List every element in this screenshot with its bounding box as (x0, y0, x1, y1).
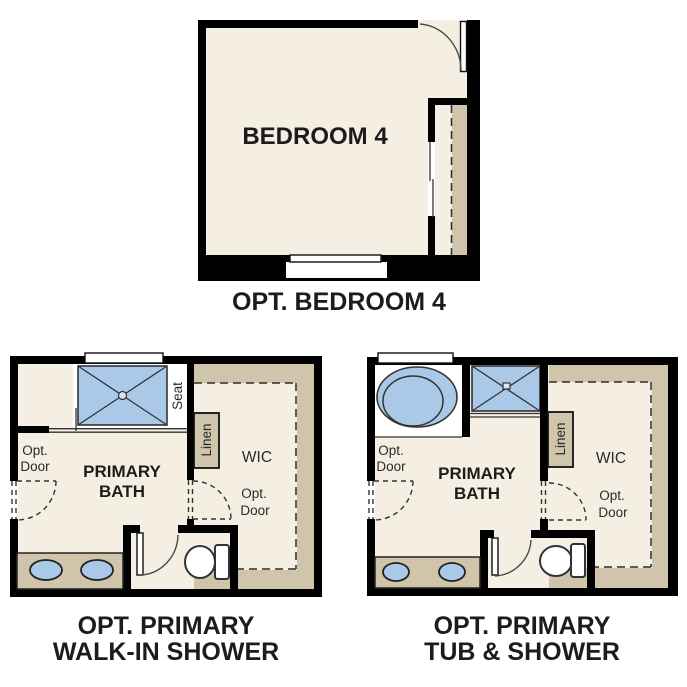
wall-top (198, 20, 418, 28)
tub-shower-divider-wall (462, 357, 470, 437)
bedroom4-room-label: BEDROOM 4 (242, 123, 388, 150)
opt-door-opening-left (10, 481, 18, 519)
shower-drain (119, 392, 127, 400)
sink-left (383, 563, 409, 581)
sink-right (439, 563, 465, 581)
wic-floor (194, 383, 297, 570)
shower-stub-wall (17, 426, 49, 433)
closet-door-opening (428, 142, 435, 216)
shower-window (85, 353, 163, 363)
wic-label: WIC (242, 449, 272, 466)
wall-right (467, 20, 480, 281)
tubshower-title-line2: TUB & SHOWER (424, 638, 620, 666)
plan-bedroom4: BEDROOM 4 OPT. BEDROOM 4 (198, 20, 480, 316)
linen-label: Linen (199, 423, 214, 456)
wc-wall-top-right (178, 525, 238, 533)
plan-walkin-shower: Opt. Door PRIMARY BATH WIC Opt. Door Sea… (10, 353, 322, 666)
bedroom4-title: OPT. BEDROOM 4 (232, 288, 446, 316)
bedroom4-floor (198, 20, 480, 281)
linen-label: Linen (553, 422, 568, 455)
wall-bottom (10, 589, 322, 597)
wall-bottom (367, 588, 676, 596)
wall-bath-wic-upper (540, 357, 548, 481)
opt-door-label: Door (20, 459, 50, 474)
tubshower-title-line1: OPT. PRIMARY (434, 612, 611, 640)
primary-bath-label: BATH (454, 484, 500, 503)
opt-door-label: Door (240, 503, 270, 518)
window-glazing (290, 255, 381, 262)
shower-drain (503, 383, 510, 389)
opt-door-label: Door (598, 505, 628, 520)
plan-tub-shower: Opt. Door PRIMARY BATH WIC Opt. Door Lin… (367, 353, 678, 666)
wc-wall-left (480, 530, 488, 588)
primary-bath-label: PRIMARY (438, 464, 516, 483)
tub-window (378, 353, 453, 363)
opt-door-label: Opt. (378, 443, 404, 458)
entry-door-leaf (461, 22, 467, 72)
opt-door-label: Door (376, 459, 406, 474)
wc-door-leaf (137, 533, 143, 575)
wc-wall-right (587, 530, 595, 596)
wall-left (198, 20, 206, 281)
opt-door-label: Opt. (241, 486, 267, 501)
closet-shelf (452, 105, 467, 255)
wall-left-upper (10, 364, 18, 481)
floorplan-drawing: BEDROOM 4 OPT. BEDROOM 4 (0, 0, 687, 687)
sink-right (81, 560, 113, 580)
toilet-bowl (540, 546, 572, 576)
wc-wall-top-right (531, 530, 595, 538)
toilet-tank (215, 545, 229, 579)
wc-wall-top-left (123, 525, 140, 533)
toilet-tank (571, 544, 585, 577)
primary-bath-label: PRIMARY (83, 462, 161, 481)
wall-right (314, 356, 322, 597)
walkin-title-line2: WALK-IN SHOWER (53, 638, 279, 666)
primary-bath-label: BATH (99, 482, 145, 501)
floorplan-sheet: BEDROOM 4 OPT. BEDROOM 4 (0, 0, 687, 687)
wc-wall-right (230, 525, 238, 597)
wc-door-leaf (492, 538, 498, 575)
window-sill (286, 262, 387, 278)
opt-door-label: Opt. (599, 488, 625, 503)
wc-wall-left (123, 525, 131, 597)
wc-wall-top-left (480, 530, 494, 538)
wall-left-upper (367, 365, 375, 481)
wall-right (668, 357, 678, 596)
wall-left-lower (367, 519, 375, 596)
wic-floor (549, 382, 652, 568)
toilet-bowl (185, 546, 215, 578)
sink-left (30, 560, 62, 580)
wic-label: WIC (596, 450, 626, 467)
opt-door-opening-left (367, 481, 375, 519)
opt-door-label: Opt. (22, 443, 48, 458)
wall-top (10, 356, 322, 364)
wall-bath-wic-upper (187, 364, 194, 480)
seat-label: Seat (170, 382, 185, 410)
walkin-title-line1: OPT. PRIMARY (78, 612, 255, 640)
